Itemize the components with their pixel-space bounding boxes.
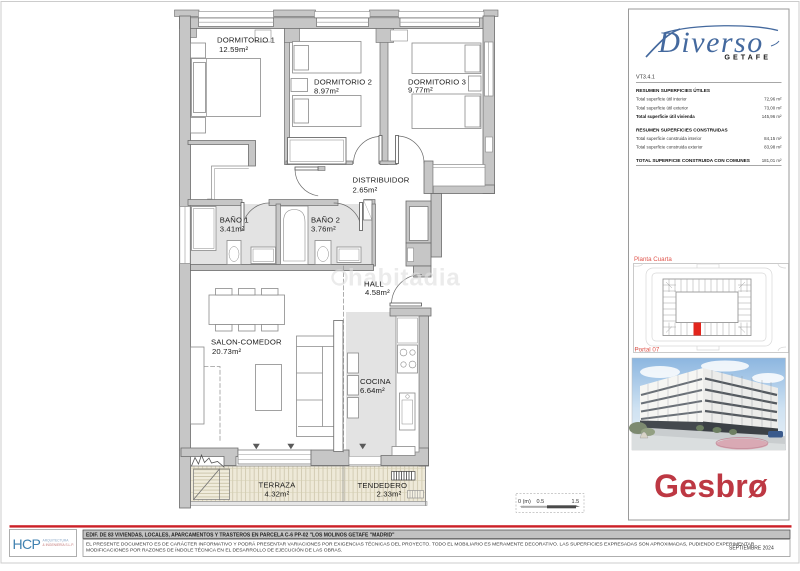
svg-text:20.73m²: 20.73m² xyxy=(212,347,242,356)
svg-text:DORMITORIO 1: DORMITORIO 1 xyxy=(217,36,275,45)
svg-text:181,01 m²: 181,01 m² xyxy=(762,158,782,163)
svg-text:EL PRESENTE DOCUMENTO ES DE CA: EL PRESENTE DOCUMENTO ES DE CARÁCTER INF… xyxy=(86,541,755,548)
svg-text:SALON-COMEDOR: SALON-COMEDOR xyxy=(211,338,282,347)
svg-text:COCINA: COCINA xyxy=(360,377,392,386)
svg-text:6.64m²: 6.64m² xyxy=(360,386,385,395)
svg-text:HCP: HCP xyxy=(13,536,41,552)
svg-text:4.32m²: 4.32m² xyxy=(265,490,290,499)
svg-text:145,96 m²: 145,96 m² xyxy=(762,114,782,119)
svg-text:0 (m): 0 (m) xyxy=(518,499,531,505)
svg-text:Total superficie construida in: Total superficie construida interior xyxy=(636,136,702,141)
svg-text:72,96 m²: 72,96 m² xyxy=(764,97,782,102)
svg-text:RESUMEN SUPERFICIES ÚTILES: RESUMEN SUPERFICIES ÚTILES xyxy=(636,87,710,93)
svg-text:DORMITORIO 2: DORMITORIO 2 xyxy=(314,78,372,87)
svg-text:VT3.4.1: VT3.4.1 xyxy=(636,75,655,81)
svg-text:1.5: 1.5 xyxy=(572,499,580,505)
svg-text:2.65m²: 2.65m² xyxy=(353,186,378,195)
svg-text:ARQUITECTURA: ARQUITECTURA xyxy=(43,539,70,543)
svg-text:0.5: 0.5 xyxy=(537,499,545,505)
svg-text:Portal 07: Portal 07 xyxy=(635,347,660,354)
svg-text:TOTAL SUPERFICIE CONSTRUIDA CO: TOTAL SUPERFICIE CONSTRUIDA CON COMUNES xyxy=(636,158,750,163)
svg-text:12.59m²: 12.59m² xyxy=(219,45,249,54)
svg-text:8.97m²: 8.97m² xyxy=(314,87,339,96)
svg-text:TERRAZA: TERRAZA xyxy=(259,481,297,490)
svg-text:MODIFICACIONES POR RAZONES DE: MODIFICACIONES POR RAZONES DE ÍNDOLE TÉC… xyxy=(86,547,342,554)
svg-text:BAÑO 1: BAÑO 1 xyxy=(220,216,249,225)
svg-text:Total superficie útil vivienda: Total superficie útil vivienda xyxy=(636,114,695,119)
svg-text:EDIF. DE 83 VIVIENDAS, LOCALES: EDIF. DE 83 VIVIENDAS, LOCALES, APARCAME… xyxy=(86,532,395,538)
svg-text:83,98 m²: 83,98 m² xyxy=(764,145,782,150)
svg-text:2.33m²: 2.33m² xyxy=(377,490,402,499)
svg-text:3.76m²: 3.76m² xyxy=(311,225,336,234)
svg-text:& INGENIERÍA S.L.P.: & INGENIERÍA S.L.P. xyxy=(43,543,75,547)
svg-text:DISTRIBUIDOR: DISTRIBUIDOR xyxy=(353,176,410,185)
svg-text:Gesbrø: Gesbrø xyxy=(654,468,768,504)
svg-text:4.58m²: 4.58m² xyxy=(365,288,390,297)
svg-text:3.41m²: 3.41m² xyxy=(220,225,245,234)
svg-text:SEPTIEMBRE 2024: SEPTIEMBRE 2024 xyxy=(729,546,774,552)
svg-text:GETAFE: GETAFE xyxy=(724,53,771,62)
svg-text:Total superficie útil exterior: Total superficie útil exterior xyxy=(636,105,689,110)
svg-text:RESUMEN SUPERFICIES CONSTRUIDA: RESUMEN SUPERFICIES CONSTRUIDAS xyxy=(636,127,728,132)
svg-text:9.77m²: 9.77m² xyxy=(408,86,433,95)
svg-text:73,00 m²: 73,00 m² xyxy=(764,105,782,110)
svg-text:Total superficie construida ex: Total superficie construida exterior xyxy=(636,145,703,150)
svg-text:Total superficie útil interior: Total superficie útil interior xyxy=(636,97,687,102)
svg-text:84,15 m²: 84,15 m² xyxy=(764,136,782,141)
svg-text:BAÑO 2: BAÑO 2 xyxy=(311,216,340,225)
svg-text:Planta Cuarta: Planta Cuarta xyxy=(634,256,672,263)
